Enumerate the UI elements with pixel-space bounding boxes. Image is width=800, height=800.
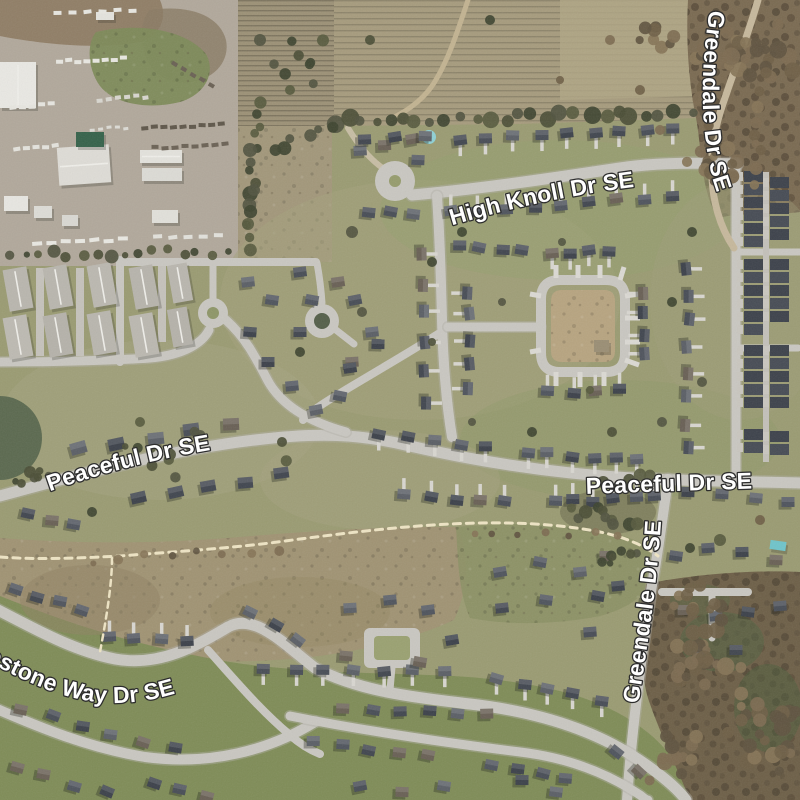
map-viewport[interactable]: Greendale Dr SE High Knoll Dr SE Peacefu… (0, 0, 800, 800)
svg-text:Peaceful Dr SE: Peaceful Dr SE (585, 467, 752, 498)
satellite-grain-texture (0, 0, 800, 800)
street-label-peaceful-dr-se-east: Peaceful Dr SE (585, 467, 752, 498)
satellite-map[interactable]: Greendale Dr SE High Knoll Dr SE Peacefu… (0, 0, 800, 800)
